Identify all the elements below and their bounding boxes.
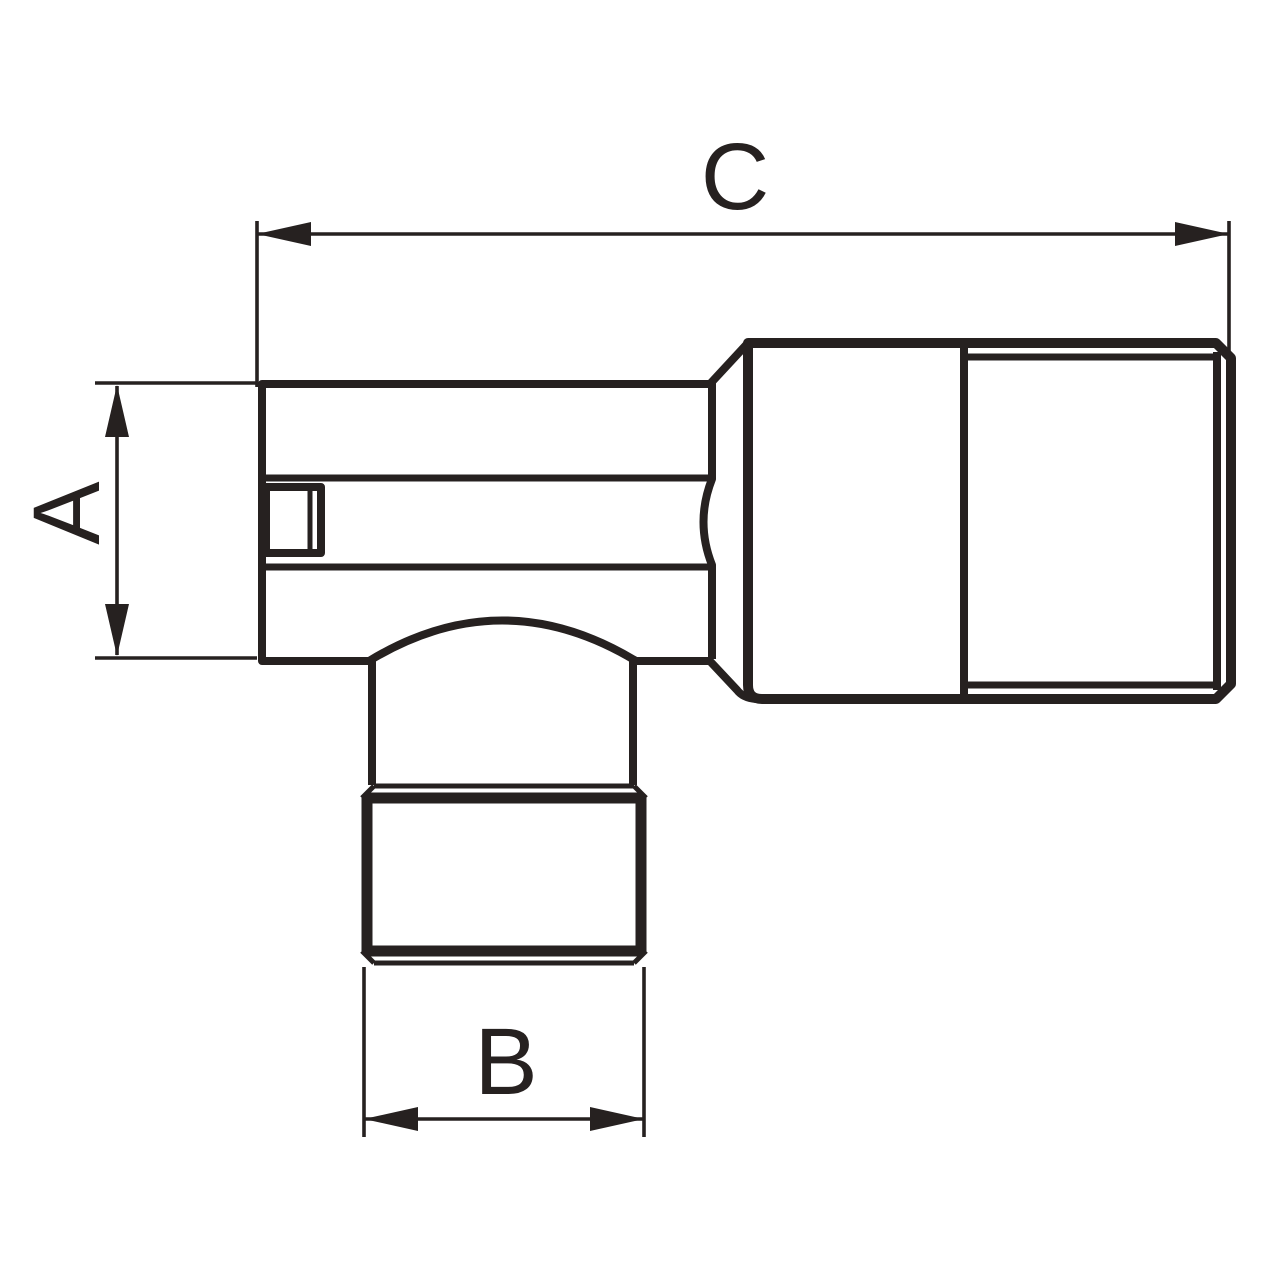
branch-stub-sides [372, 658, 633, 785]
fitting-outline [262, 343, 1231, 963]
dim-b-arrowhead-left [364, 1107, 418, 1131]
tube-right-face [704, 384, 713, 659]
dim-b-label: B [474, 1009, 537, 1115]
branch-dome-arc [369, 621, 636, 662]
male-thread-section [362, 786, 646, 963]
dim-a-arrowhead-top [105, 385, 129, 437]
dim-c-arrowhead-left [257, 222, 311, 246]
technical-drawing-canvas: C A B [0, 0, 1280, 1280]
dim-b-arrowhead-right [590, 1107, 644, 1131]
thread-root-band [367, 798, 641, 951]
dim-c-arrowhead-right [1175, 222, 1229, 246]
socket-outline [748, 343, 1231, 699]
tube-body [262, 344, 756, 699]
dim-c-label: C [701, 124, 770, 230]
shoulder-chamfer-top [709, 344, 747, 385]
dim-a-label: A [14, 481, 120, 545]
socket-block [748, 343, 1231, 699]
fitting-diagram-svg: C A B [0, 0, 1280, 1280]
dim-a-arrowhead-bottom [105, 604, 129, 656]
dimension-b: B [364, 967, 644, 1137]
thread-crest-lines [362, 786, 646, 963]
port-rectangle [266, 487, 321, 553]
left-port-detail [266, 487, 321, 553]
dimension-a: A [14, 383, 257, 658]
